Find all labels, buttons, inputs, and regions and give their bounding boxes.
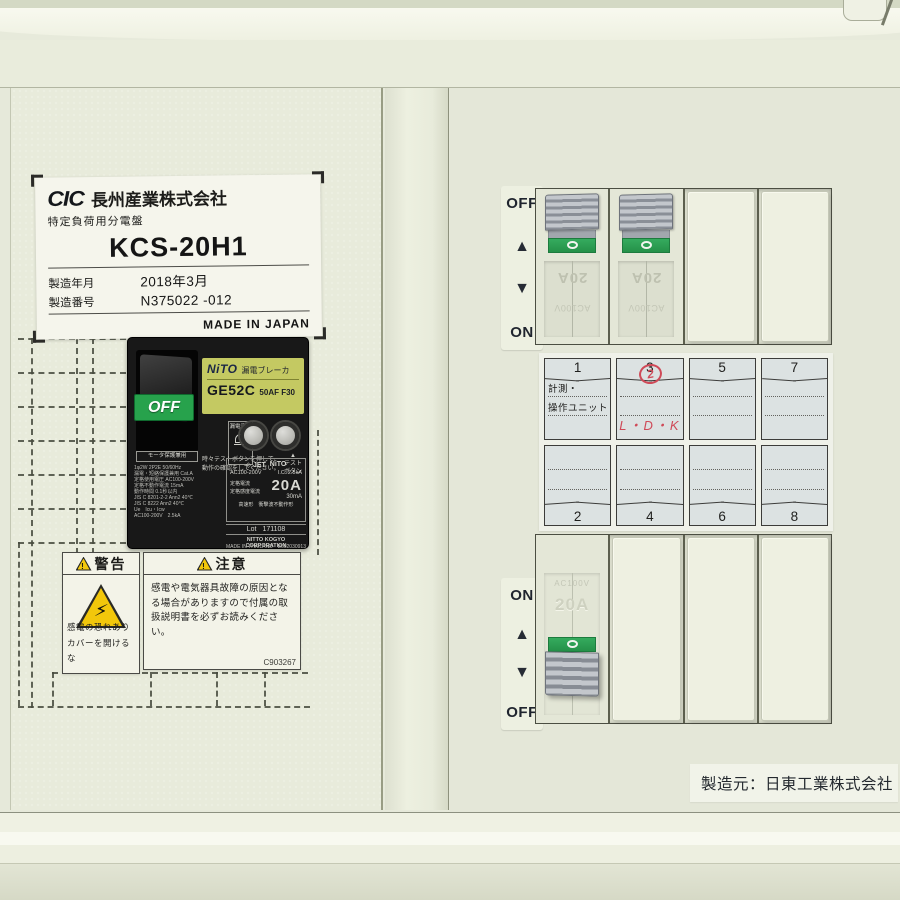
toggle-neck — [622, 230, 670, 238]
test-button[interactable] — [272, 422, 299, 449]
nito-logo: NiTO — [207, 362, 237, 376]
cell-chevron — [690, 375, 755, 383]
write-line — [548, 489, 607, 490]
off-label: OFF — [506, 195, 538, 212]
write-line — [693, 415, 752, 416]
cic-logo: CIC — [47, 186, 84, 211]
write-line — [620, 469, 679, 470]
knockout-guide-line — [216, 672, 218, 706]
knockout-guide-line — [18, 706, 310, 708]
rated-voltage: AC100-200V — [230, 470, 262, 476]
breaker-origin: MADE IN THAILAND — [226, 544, 273, 550]
cabinet-bottom-shadow — [0, 864, 900, 900]
blank-slot — [757, 189, 831, 344]
knockout-guide-line — [264, 672, 266, 706]
caution-title: 注意 — [216, 554, 248, 574]
blank-slot — [683, 535, 757, 723]
write-line — [620, 396, 679, 397]
breaker-voltage: AC100V — [610, 303, 682, 313]
write-line — [620, 489, 679, 490]
knockout-guide-line — [18, 508, 126, 510]
mfg-date-label: 製造年月 — [48, 274, 140, 291]
circuit-number: 1 — [545, 360, 610, 375]
cell-chevron — [617, 501, 682, 509]
registration-mark-icon — [314, 327, 326, 339]
knockout-guide-line — [150, 672, 152, 706]
cell-chevron — [545, 501, 610, 509]
knockout-guide-line — [18, 440, 126, 442]
cabinet-bottom-rail — [0, 812, 900, 832]
breaker-on-indicator — [622, 238, 670, 253]
hinge-strip — [385, 88, 449, 810]
off-label: OFF — [506, 704, 538, 721]
knockout-guide-line — [52, 672, 54, 706]
breaker-rating: 20A — [536, 269, 608, 286]
branch-breaker-1: 20A AC100V — [536, 189, 608, 344]
knockout-guide-line — [317, 430, 319, 555]
breaker-category: 漏電ブレーカ — [241, 365, 289, 376]
circuit-cell-4: 4 — [616, 445, 683, 527]
knockout-guide-line — [18, 542, 20, 706]
circuit-number: 6 — [690, 509, 755, 524]
warning-triangle-icon: ! — [76, 557, 92, 571]
knockout-guide-line — [18, 372, 126, 374]
rated-current-label: 定格電流 — [230, 481, 260, 489]
breaker-rating: 20A — [536, 595, 608, 615]
blank-cover — [761, 191, 829, 342]
circuit-label-grid: 1 計測・ 操作ユニット 3 2 L・D・K 5 7 2 4 6 — [539, 353, 833, 531]
blank-slot — [608, 535, 682, 723]
caution-body: 感電や電気器具故障の原因となる場合がありますので付属の取扱説明書を必ずお読みくだ… — [144, 575, 300, 641]
circuit-cell-8: 8 — [761, 445, 828, 527]
circuit-number: 2 — [545, 509, 610, 524]
warning-sticker: ! 警告 ⚡ 感電の恐れあり カバーを開けるな — [62, 552, 140, 674]
lot-label: Lot — [247, 526, 257, 533]
breaker-voltage: AC100V — [536, 303, 608, 313]
blank-cover — [761, 537, 829, 721]
breaker-brand-plate: NiTO 漏電ブレーカ GE52C 50AF F30 — [202, 358, 304, 414]
toggle-neck — [548, 230, 596, 238]
sensitivity-value: 30mA — [271, 494, 302, 500]
main-breaker-state-label: OFF — [134, 394, 194, 421]
toggle-handle[interactable] — [545, 651, 599, 696]
cell-chevron — [690, 501, 755, 509]
write-line — [765, 415, 824, 416]
on-label: ON — [510, 324, 534, 341]
circuit-number: 5 — [690, 360, 755, 375]
spec-header: モータ保護兼用 — [136, 451, 198, 462]
circuit-label-text: 計測・ 操作ユニット — [548, 380, 608, 419]
breaker-rating: 20A — [610, 269, 682, 286]
branch-breaker-2: 20A AC100V — [608, 189, 682, 344]
circuit-cell-2: 2 — [544, 445, 611, 527]
manufacturer-label: 製造元：日東工業株式会社 — [690, 764, 898, 802]
circuit-number: 4 — [617, 509, 682, 524]
handwritten-room-note: L・D・K — [617, 415, 682, 434]
divider — [207, 379, 299, 380]
breaker-on-indicator — [548, 637, 596, 652]
warning-title: 警告 — [95, 554, 127, 574]
circuit-cell-7: 7 — [761, 358, 828, 440]
cabinet-bottom-highlight — [0, 832, 900, 845]
rating-nameplate: CIC 長州産業株式会社 特定負荷用分電盤 KCS-20H1 製造年月 2018… — [35, 174, 322, 339]
blank-slot — [683, 189, 757, 344]
cabinet-latch-clip — [843, 0, 887, 21]
origin-text: MADE IN JAPAN — [49, 316, 310, 333]
circuit-cell-1: 1 計測・ 操作ユニット — [544, 358, 611, 440]
rating-box: ◇ JET NiTO AC100-200V I.C. 2.5kA 定格電流 定格… — [226, 458, 306, 522]
write-line — [765, 396, 824, 397]
branch-breaker-toggle[interactable] — [545, 194, 599, 253]
spec-list: 1φ2W 2P2E 50/60Hz 漏電・短絡保護兼用 Cat.A 定格使用電圧… — [134, 465, 222, 519]
breaker-on-indicator — [548, 238, 596, 253]
type-note: 高速形 衝撃波不動作形 — [230, 501, 302, 508]
top-breaker-row: 20A AC100V 20A AC100V — [535, 188, 832, 345]
toggle-handle[interactable] — [619, 193, 673, 230]
model-number: KCS-20H1 — [48, 230, 309, 264]
breaker-code: B602030913 — [278, 544, 306, 550]
spec-line: AC100-200V 2.5kA — [134, 513, 222, 519]
rated-current-value: 20A — [271, 477, 302, 494]
branch-breaker-toggle[interactable] — [619, 194, 673, 253]
cabinet-top-edge — [0, 8, 900, 42]
circuit-cell-6: 6 — [689, 445, 756, 527]
write-line — [765, 469, 824, 470]
serial-value: N375022 -012 — [140, 292, 232, 308]
blank-cover — [612, 537, 680, 721]
circuit-cell-3: 3 2 L・D・K — [616, 358, 683, 440]
on-label: ON — [510, 587, 534, 604]
up-arrow-icon: ▲ — [514, 240, 530, 254]
distribution-panel-photo: { "nameplate": { "brand": "CIC", "compan… — [0, 0, 900, 900]
write-line — [693, 489, 752, 490]
cell-chevron — [762, 501, 827, 509]
lot-row: Lot 171108 — [226, 524, 306, 535]
circuit-number: 7 — [762, 360, 827, 375]
breaker-voltage: AC100V — [536, 579, 608, 588]
caution-sticker: ! 注意 感電や電気器具故障の原因となる場合がありますので付属の取扱説明書を必ず… — [143, 552, 301, 670]
toggle-handle[interactable] — [545, 193, 599, 230]
sensitivity-label: 定格感度電流 — [230, 489, 260, 497]
branch-breaker-bottom: AC100V 20A — [536, 535, 608, 723]
knockout-guide-line — [31, 338, 33, 708]
caution-triangle-icon: ! — [197, 557, 213, 571]
write-line — [548, 469, 607, 470]
blank-slot — [757, 535, 831, 723]
jet-cert-mark: ◇ JET — [246, 461, 266, 469]
serial-label: 製造番号 — [48, 293, 140, 310]
write-line — [693, 469, 752, 470]
caution-code: C903267 — [264, 658, 296, 667]
mfg-date-value: 2018年3月 — [140, 270, 208, 291]
registration-mark-icon — [31, 175, 43, 187]
write-line — [693, 396, 752, 397]
knockout-guide-line — [18, 406, 126, 408]
breaking-capacity: I.C. 2.5kA — [278, 470, 302, 476]
down-arrow-icon: ▼ — [514, 282, 530, 296]
breaker-model: GE52C — [207, 382, 255, 398]
knockout-guide-line — [18, 542, 126, 544]
product-type: 特定負荷用分電盤 — [47, 210, 308, 229]
knockout-guide-line — [18, 474, 126, 476]
cabinet-bottom-rail-lower — [0, 845, 900, 864]
write-line — [765, 489, 824, 490]
company-name: 長州産業株式会社 — [91, 184, 227, 211]
up-arrow-icon: ▲ — [514, 628, 530, 642]
down-arrow-icon: ▼ — [514, 666, 530, 680]
branch-breaker-toggle[interactable] — [545, 637, 599, 696]
registration-mark-icon — [33, 331, 45, 343]
lot-number: 171108 — [262, 526, 285, 533]
indicator-reset-button[interactable] — [240, 422, 267, 449]
cell-chevron — [762, 375, 827, 383]
circuit-cell-5: 5 — [689, 358, 756, 440]
breaker-frame: 50AF F30 — [259, 388, 295, 397]
main-leakage-breaker: OFF NiTO 漏電ブレーカ GE52C 50AF F30 漏電表示 時々テス… — [127, 337, 309, 549]
divider — [49, 310, 310, 314]
circuit-number: 8 — [762, 509, 827, 524]
nito-mini-logo: NiTO — [270, 461, 287, 469]
bottom-breaker-row: AC100V 20A — [535, 534, 832, 724]
cabinet-top-rail — [0, 40, 900, 88]
blank-cover — [687, 191, 755, 342]
blank-cover — [687, 537, 755, 721]
registration-mark-icon — [312, 171, 324, 183]
breaker-origin-row: MADE IN THAILAND B602030913 — [226, 544, 306, 550]
warning-body: 感電の恐れあり カバーを開けるな — [67, 620, 137, 667]
